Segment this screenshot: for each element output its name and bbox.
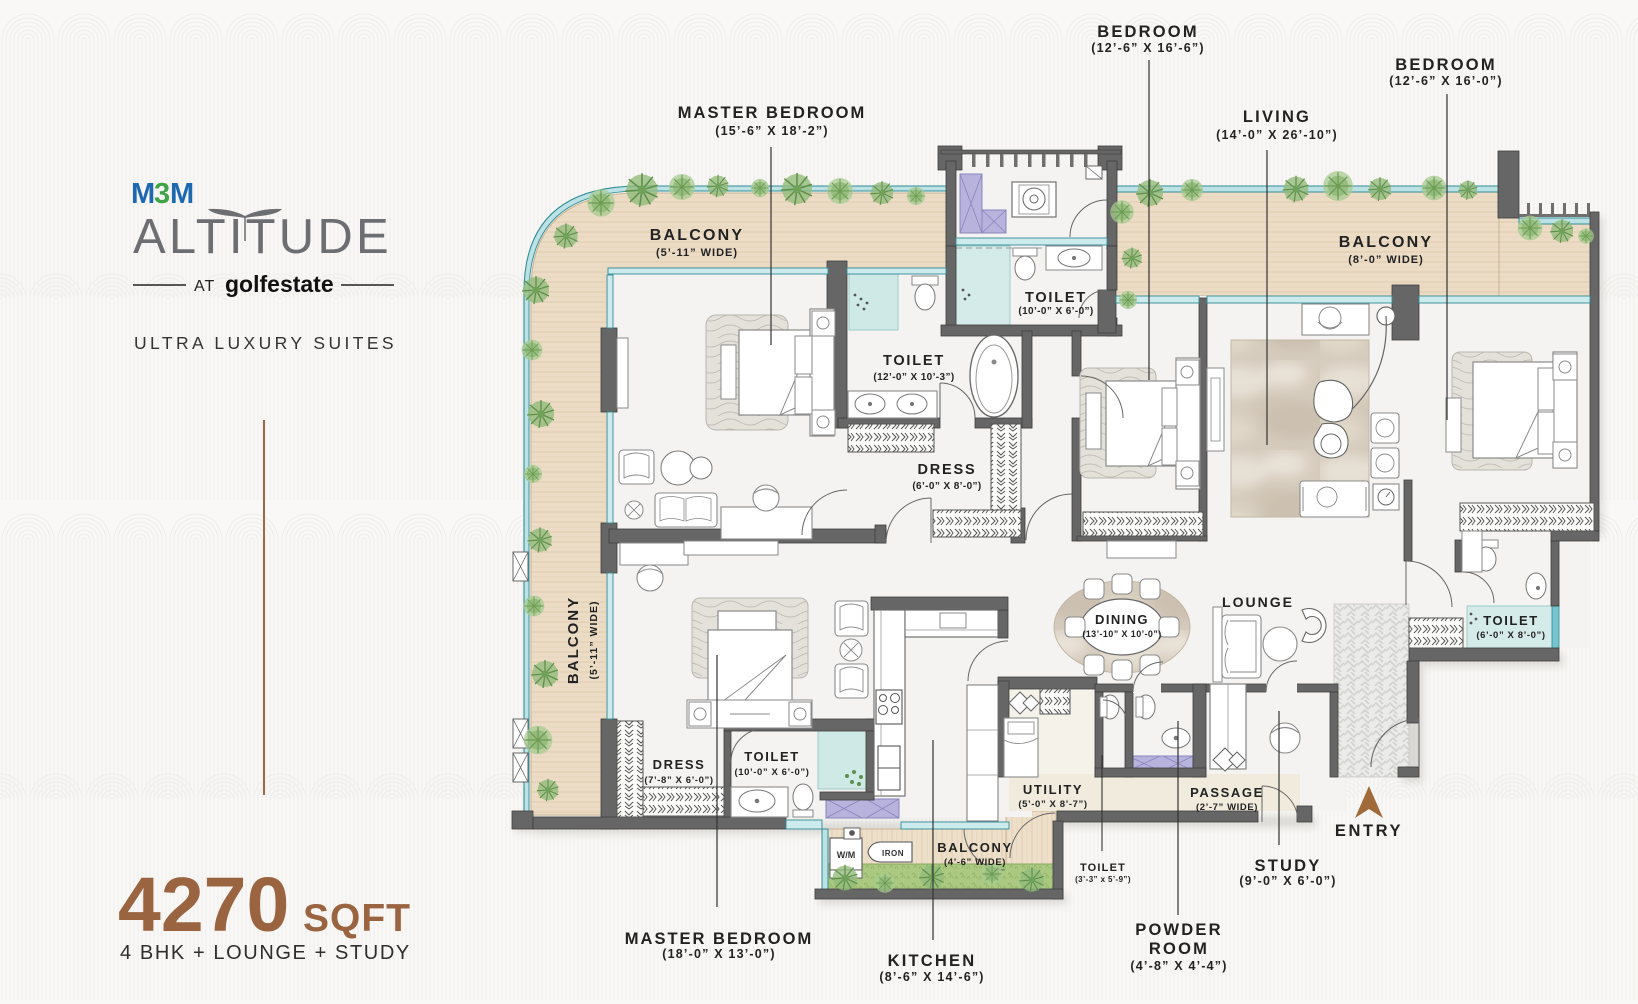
svg-text:(7’-8” X 6’-0”): (7’-8” X 6’-0”) (644, 775, 713, 786)
svg-text:ULTRA LUXURY SUITES: ULTRA LUXURY SUITES (134, 333, 397, 353)
svg-text:(8’-0” WIDE): (8’-0” WIDE) (1348, 254, 1424, 266)
svg-text:IRON: IRON (882, 849, 904, 858)
svg-text:(12’-6” X 16’-6”): (12’-6” X 16’-6”) (1091, 41, 1205, 55)
svg-text:(5’-11” WIDE): (5’-11” WIDE) (656, 247, 738, 259)
svg-text:AT: AT (194, 278, 215, 295)
svg-text:(6’-0” X 8’-0”): (6’-0” X 8’-0”) (1476, 630, 1545, 641)
svg-text:(15’-6” X 18’-2”): (15’-6” X 18’-2”) (715, 124, 829, 138)
svg-text:(2’-7” WIDE): (2’-7” WIDE) (1196, 802, 1258, 813)
svg-text:M: M (170, 178, 195, 210)
svg-text:LOUNGE: LOUNGE (1222, 594, 1294, 610)
svg-text:(12’-0” X 10’-3”): (12’-0” X 10’-3”) (873, 372, 954, 383)
svg-text:POWDER: POWDER (1135, 921, 1222, 939)
svg-text:(6’-0” X 8’-0”): (6’-0” X 8’-0”) (912, 481, 981, 492)
svg-text:(5’-0” X 8’-7”): (5’-0” X 8’-7”) (1018, 799, 1087, 810)
svg-text:(13’-10” X 10’-0”): (13’-10” X 10’-0”) (1082, 629, 1161, 639)
svg-text:(10’-0” X 6’-0”): (10’-0” X 6’-0”) (1018, 306, 1093, 317)
svg-text:DRESS: DRESS (918, 462, 977, 478)
svg-text:STUDY: STUDY (1255, 857, 1322, 875)
svg-text:(8’-6” X 14’-6”): (8’-6” X 14’-6”) (879, 970, 984, 984)
svg-text:TOILET: TOILET (1483, 613, 1539, 628)
svg-text:(14’-0” X 26’-10”): (14’-0” X 26’-10”) (1216, 128, 1338, 142)
svg-text:W/M: W/M (837, 850, 856, 860)
svg-text:4270: 4270 (118, 862, 289, 948)
svg-text:(4’-6” WIDE): (4’-6” WIDE) (944, 857, 1006, 868)
svg-text:TOILET: TOILET (1080, 862, 1126, 874)
svg-text:BALCONY: BALCONY (937, 840, 1012, 855)
svg-text:(9’-0” X 6’-0”): (9’-0” X 6’-0”) (1239, 874, 1336, 888)
svg-text:MASTER BEDROOM: MASTER BEDROOM (678, 104, 866, 122)
svg-text:(12’-6” X 16’-0”): (12’-6” X 16’-0”) (1389, 74, 1503, 88)
svg-text:BALCONY: BALCONY (565, 596, 582, 684)
svg-text:(4’-8” X 4’-4”): (4’-8” X 4’-4”) (1130, 959, 1227, 973)
svg-text:DRESS: DRESS (653, 757, 706, 772)
svg-text:BALCONY: BALCONY (650, 227, 745, 244)
svg-text:MASTER BEDROOM: MASTER BEDROOM (625, 930, 813, 948)
svg-text:LIVING: LIVING (1243, 108, 1311, 126)
svg-text:KITCHEN: KITCHEN (888, 952, 977, 970)
svg-text:(18’-0” X 13’-0”): (18’-0” X 13’-0”) (662, 947, 776, 961)
svg-text:ROOM: ROOM (1149, 940, 1209, 958)
svg-text:UTILITY: UTILITY (1023, 782, 1083, 797)
svg-text:(3’-3” x 5’-9”): (3’-3” x 5’-9”) (1075, 875, 1131, 884)
svg-text:TOILET: TOILET (883, 353, 945, 369)
svg-text:PASSAGE: PASSAGE (1190, 785, 1264, 800)
svg-text:(5’-11” WIDE): (5’-11” WIDE) (588, 601, 600, 680)
svg-text:ENTRY: ENTRY (1335, 822, 1403, 840)
svg-text:3: 3 (154, 178, 171, 210)
svg-text:M: M (131, 178, 156, 210)
svg-text:SQFT: SQFT (303, 897, 411, 940)
svg-text:(10’-0” X 6’-0”): (10’-0” X 6’-0”) (734, 767, 809, 778)
svg-text:BEDROOM: BEDROOM (1395, 56, 1497, 74)
svg-text:ALTITUDE: ALTITUDE (133, 210, 392, 264)
svg-text:golfestate: golfestate (225, 271, 334, 297)
svg-text:BALCONY: BALCONY (1339, 234, 1434, 251)
svg-text:TOILET: TOILET (1025, 290, 1087, 306)
svg-text:BEDROOM: BEDROOM (1097, 23, 1199, 41)
svg-text:TOILET: TOILET (744, 749, 800, 764)
svg-text:DINING: DINING (1095, 612, 1149, 627)
svg-text:4 BHK + LOUNGE + STUDY: 4 BHK + LOUNGE + STUDY (120, 942, 411, 964)
